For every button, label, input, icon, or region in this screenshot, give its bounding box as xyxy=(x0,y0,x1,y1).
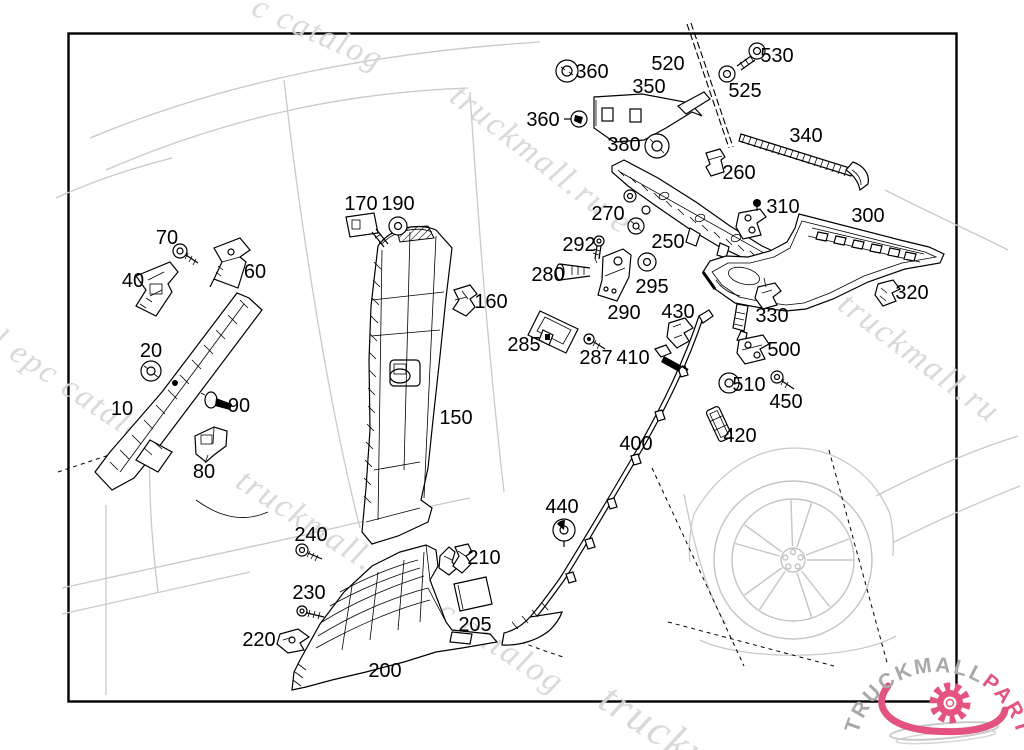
hook-80 xyxy=(195,427,227,463)
callout-20: 20 xyxy=(140,340,162,362)
watermark-text: truckmall.ru xyxy=(831,285,1007,431)
callout-285: 285 xyxy=(507,334,540,356)
callout-510: 510 xyxy=(732,374,765,396)
pad-205 xyxy=(454,577,492,611)
clip-360-left xyxy=(564,111,587,127)
callout-230: 230 xyxy=(292,582,325,604)
callout-530: 530 xyxy=(760,45,793,67)
callout-160: 160 xyxy=(474,291,507,313)
grommet-380 xyxy=(645,134,669,158)
callout-210: 210 xyxy=(467,547,500,569)
callout-450: 450 xyxy=(769,391,802,413)
callout-90: 90 xyxy=(228,395,250,417)
callout-360-top: 360 xyxy=(575,61,608,83)
callout-205: 205 xyxy=(458,614,491,636)
rear-wheel-sketch xyxy=(714,481,872,639)
callout-310: 310 xyxy=(766,196,799,218)
grommet-295 xyxy=(638,253,656,271)
callout-250: 250 xyxy=(651,231,684,253)
watermark-text: c catalog xyxy=(247,0,389,78)
callout-360-left: 360 xyxy=(526,109,559,131)
callout-70: 70 xyxy=(156,227,178,249)
bracket-500 xyxy=(737,335,769,364)
callout-240: 240 xyxy=(294,524,327,546)
callout-525: 525 xyxy=(728,80,761,102)
screw-450 xyxy=(771,371,794,389)
callout-500: 500 xyxy=(767,339,800,361)
part-520-strip xyxy=(687,23,733,148)
callout-292: 292 xyxy=(562,234,595,256)
callout-290: 290 xyxy=(607,302,640,324)
grommet-270 xyxy=(628,218,644,234)
grommet-20 xyxy=(141,361,161,381)
callout-330: 330 xyxy=(755,305,788,327)
callout-320: 320 xyxy=(895,282,928,304)
bracket-290 xyxy=(598,249,631,301)
grommet-190 xyxy=(389,217,407,235)
callout-295: 295 xyxy=(635,276,668,298)
callout-520: 520 xyxy=(651,53,684,75)
callout-420: 420 xyxy=(723,425,756,447)
callout-80: 80 xyxy=(193,461,215,483)
callout-270: 270 xyxy=(591,203,624,225)
callout-40: 40 xyxy=(122,270,144,292)
callout-300: 300 xyxy=(851,205,884,227)
callout-190: 190 xyxy=(381,193,414,215)
callout-10: 10 xyxy=(111,398,133,420)
callout-410: 410 xyxy=(616,347,649,369)
callout-380: 380 xyxy=(607,134,640,156)
bracket-310 xyxy=(736,199,766,239)
clip-220 xyxy=(277,629,309,653)
gear-icon xyxy=(934,687,966,719)
callout-400: 400 xyxy=(619,433,652,455)
callout-150: 150 xyxy=(439,407,472,429)
callout-287: 287 xyxy=(579,347,612,369)
screw-230 xyxy=(297,606,324,619)
part-10-a-pillar-trim xyxy=(95,293,262,490)
watermark-text: truckm xyxy=(591,673,730,750)
callout-200: 200 xyxy=(368,660,401,682)
callout-340: 340 xyxy=(789,125,822,147)
callout-440: 440 xyxy=(545,496,578,518)
callout-220: 220 xyxy=(242,629,275,651)
exploded-parts-diagram: c catalog truckmall.ru e l epc catalog t… xyxy=(0,0,1024,750)
grommet-440 xyxy=(553,519,575,547)
callout-260: 260 xyxy=(722,162,755,184)
callout-170: 170 xyxy=(344,193,377,215)
part-150-b-pillar-upper-trim xyxy=(362,226,452,544)
callout-280: 280 xyxy=(531,264,564,286)
callout-350: 350 xyxy=(632,76,665,98)
callout-430: 430 xyxy=(661,301,694,323)
callout-60: 60 xyxy=(244,261,266,283)
